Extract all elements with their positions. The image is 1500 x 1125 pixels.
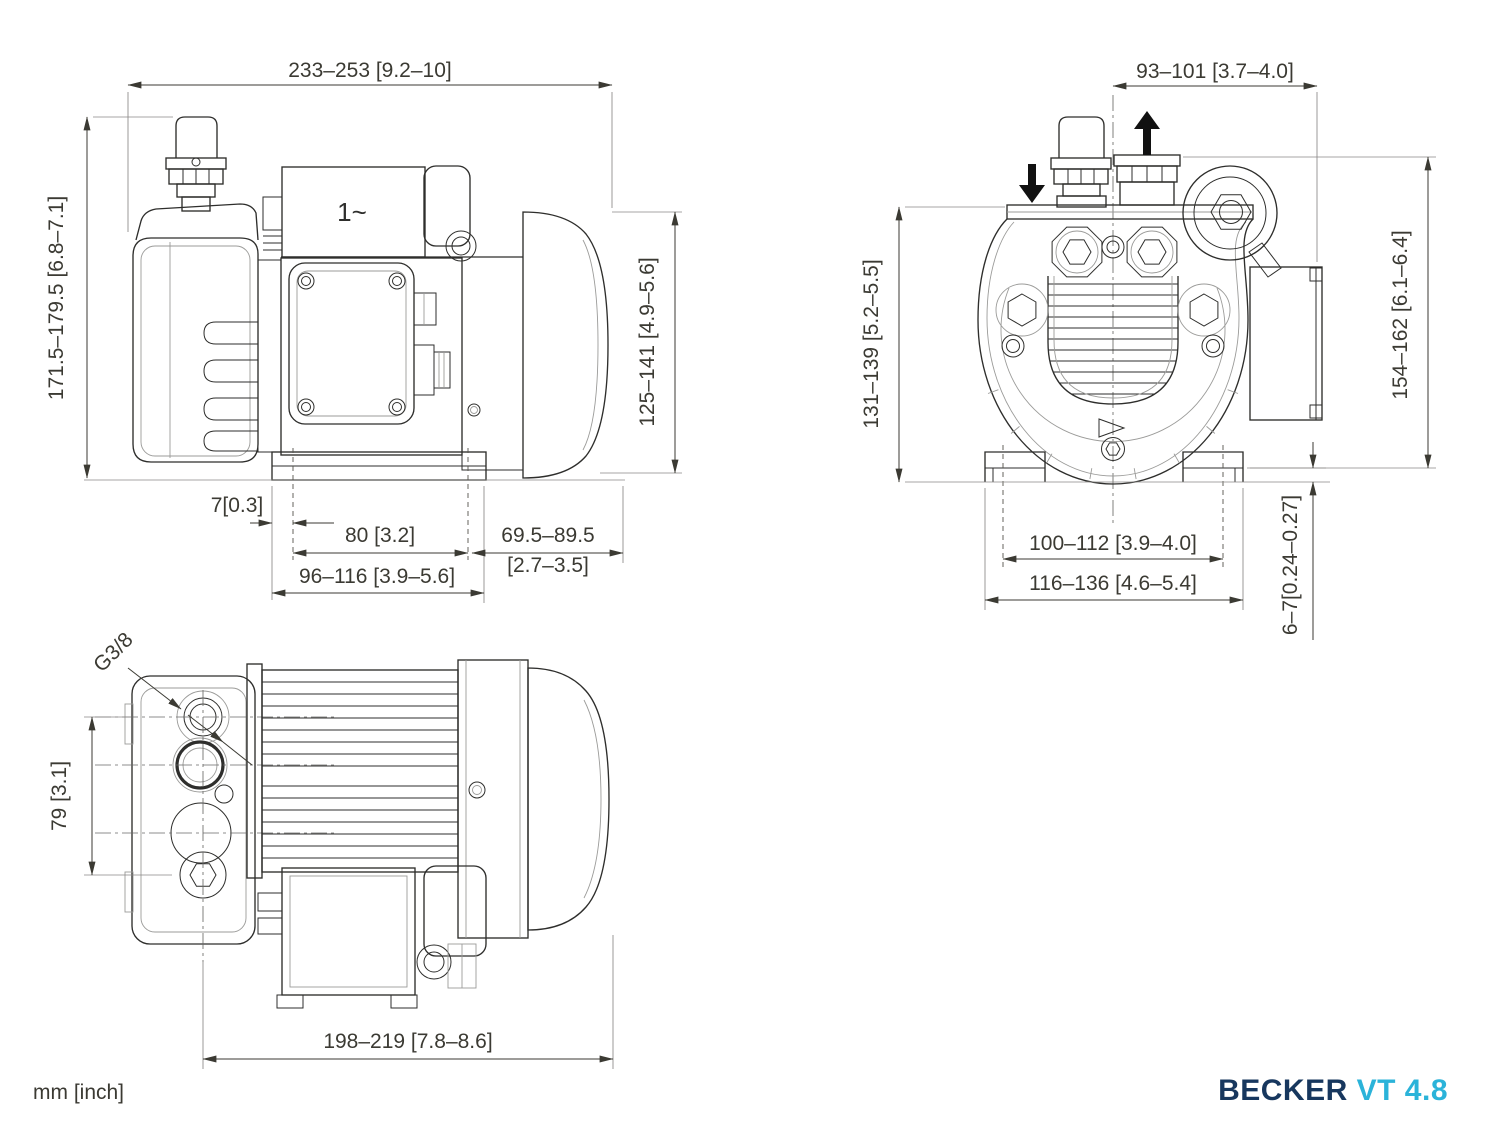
- port-centerlines: [95, 717, 335, 833]
- dimension-drawing-page: 1~ 233–253 [9.2–10] 171.5–179.5 [6.8–7.1…: [0, 0, 1500, 1125]
- dim-side-base-length: 96–116 [3.9–5.6]: [299, 565, 455, 588]
- lifting-eye: [1183, 166, 1281, 277]
- model-name: VT 4.8: [1357, 1074, 1448, 1107]
- exhaust-muffler: [1114, 155, 1180, 205]
- dim-side-foot-edge-offset: 7[0.3]: [211, 494, 264, 517]
- dim-front-total-height: 154–162 [6.1–6.4]: [1389, 230, 1412, 399]
- dim-side-foot-hole-spacing: 80 [3.2]: [345, 524, 415, 547]
- technical-drawing: 1~ 233–253 [9.2–10] 171.5–179.5 [6.8–7.1…: [0, 0, 1500, 1125]
- motor-finned-body: [247, 664, 458, 878]
- motor-end-cap: [458, 660, 609, 938]
- exhaust-arrow-icon: [1134, 111, 1160, 155]
- drain-plug: [1099, 419, 1125, 461]
- dim-top-port-spacing: 79 [3.1]: [48, 761, 71, 831]
- small-port: [215, 785, 233, 803]
- base-foot: [272, 452, 486, 480]
- intake-filter: [166, 117, 226, 211]
- capacitor: [417, 866, 486, 988]
- dim-side-overall-length: 233–253 [9.2–10]: [288, 59, 452, 82]
- dim-top-body-length: 198–219 [7.8–8.6]: [323, 1030, 492, 1053]
- pump-housing: [133, 204, 258, 462]
- housing-flange: [258, 260, 281, 452]
- brand-name: BECKER: [1218, 1074, 1348, 1107]
- intake-arrow-icon: [1019, 164, 1045, 203]
- dim-side-overhang-mm: 69.5–89.5: [501, 524, 594, 547]
- terminal-box: 1~: [263, 167, 425, 257]
- units-label: mm [inch]: [33, 1081, 124, 1105]
- dim-front-foot-width: 116–136 [4.6–5.4]: [1029, 572, 1197, 595]
- motor-phase-label: 1~: [337, 197, 367, 227]
- dim-front-foot-slot-height: 6–7[0.24–0.27]: [1279, 495, 1302, 635]
- pump-body: [281, 258, 462, 455]
- side-view-drawing: 1~: [84, 117, 625, 480]
- dim-front-foot-hole-spacing: 100–112 [3.9–4.0]: [1029, 532, 1197, 555]
- dim-side-overall-height: 171.5–179.5 [6.8–7.1]: [45, 196, 68, 400]
- front-view-drawing: [905, 95, 1330, 567]
- intake-filter: [1051, 117, 1111, 207]
- motor-behind: [1250, 267, 1322, 420]
- dim-front-housing-height: 131–139 [5.2–5.5]: [860, 259, 883, 428]
- motor: [281, 212, 608, 478]
- terminal-box: [258, 868, 417, 1008]
- capacitor: [424, 166, 476, 261]
- brand-logo: BECKER VT 4.8: [1218, 1074, 1448, 1108]
- top-view-drawing: [95, 660, 609, 1008]
- oil-fill-plugs: [1052, 227, 1177, 277]
- dim-side-overhang-inch: [2.7–3.5]: [507, 554, 589, 577]
- dim-side-motor-diameter: 125–141 [4.9–5.6]: [636, 257, 659, 426]
- dim-front-port-offset: 93–101 [3.7–4.0]: [1136, 60, 1294, 83]
